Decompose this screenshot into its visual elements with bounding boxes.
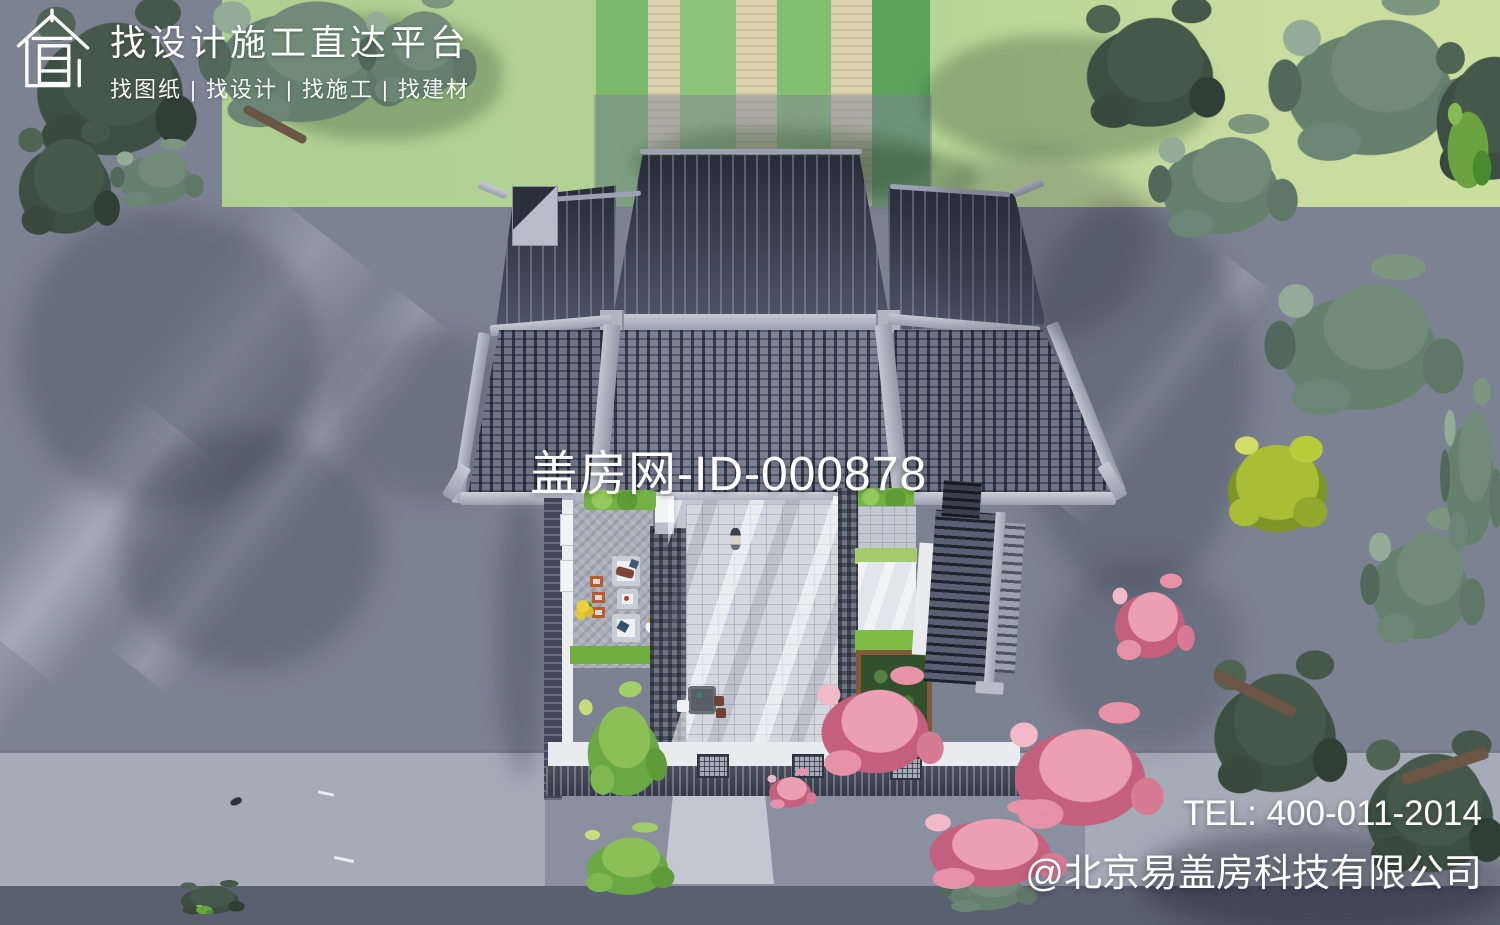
teal-teapot <box>696 692 702 698</box>
roof-eave-trim <box>640 149 862 154</box>
company-name: @北京易盖房科技有限公司 <box>1025 842 1482 897</box>
red-cup <box>624 596 629 601</box>
chimney <box>512 186 558 246</box>
patio-paving <box>573 504 653 668</box>
orange-chair <box>590 576 603 587</box>
roof-back-slope-center <box>612 150 890 322</box>
house-logo-icon <box>10 6 94 99</box>
wood-chair <box>714 696 724 706</box>
contact-info: TEL: 400-011-2014 @北京易盖房科技有限公司 <box>1025 794 1482 897</box>
aerial-render-scene: 找设计施工直达平台 找图纸 | 找设计 | 找施工 | 找建材 盖房网-ID-0… <box>0 0 1500 925</box>
wall-shadow <box>498 498 546 778</box>
wood-chair <box>716 708 726 718</box>
yellow-flower-bush <box>574 596 596 622</box>
pink-blossom-tree <box>745 755 835 825</box>
tree <box>1420 330 1500 610</box>
small-plants <box>185 900 225 920</box>
platform-subtitle: 找图纸 | 找设计 | 找施工 | 找建材 <box>110 72 470 104</box>
platform-logo: 找设计施工直达平台 找图纸 | 找设计 | 找施工 | 找建材 <box>10 2 490 97</box>
tree-shadow-on-road <box>120 430 380 670</box>
tree <box>80 120 230 230</box>
pink-blossom-tree <box>1075 545 1225 695</box>
garden-light-paving <box>858 562 916 632</box>
bamboo-cluster <box>540 800 715 925</box>
platform-title: 找设计施工直达平台 <box>110 14 470 66</box>
watermark-site-id: 盖房网-ID-000878 <box>530 434 927 504</box>
main-ridge <box>605 314 895 331</box>
person-standing <box>730 528 741 550</box>
lattice-window <box>697 754 729 778</box>
telephone-number: TEL: 400-011-2014 <box>1025 794 1482 834</box>
garden-paving <box>858 506 916 552</box>
tree <box>1420 60 1500 240</box>
side-building-roof-top <box>941 480 981 519</box>
